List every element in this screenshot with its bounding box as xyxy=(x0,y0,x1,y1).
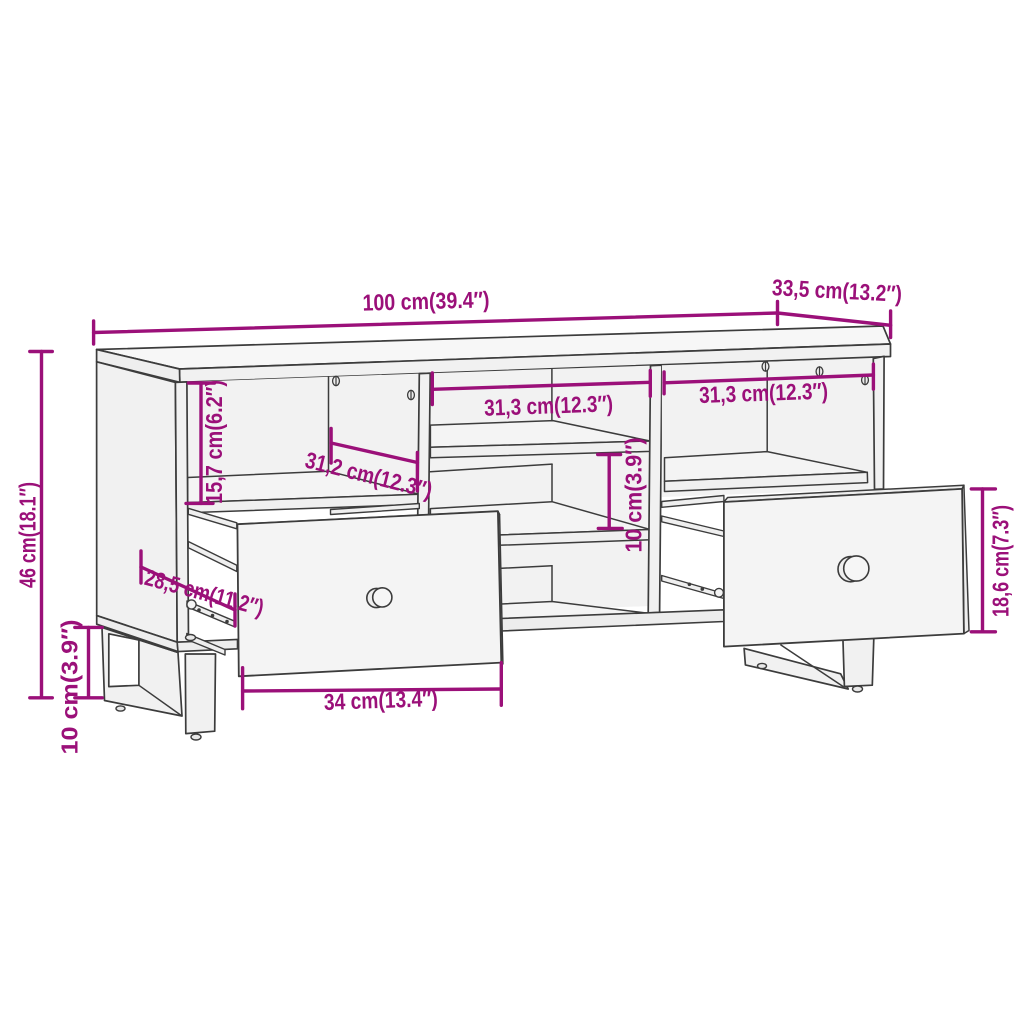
svg-text:10 cm(3.9″): 10 cm(3.9″) xyxy=(57,620,83,755)
svg-text:15,7 cm(6.2″): 15,7 cm(6.2″) xyxy=(201,380,227,504)
svg-text:10 cm(3.9″): 10 cm(3.9″) xyxy=(621,438,647,553)
svg-text:33,5 cm(13.2″): 33,5 cm(13.2″) xyxy=(771,274,902,307)
svg-text:34 cm(13.4″): 34 cm(13.4″) xyxy=(323,685,438,715)
svg-text:31,3 cm(12.3″): 31,3 cm(12.3″) xyxy=(484,390,614,420)
svg-text:18,6 cm(7.3″): 18,6 cm(7.3″) xyxy=(988,505,1014,617)
svg-text:100 cm(39.4″): 100 cm(39.4″) xyxy=(362,286,490,315)
svg-text:46 cm(18.1″): 46 cm(18.1″) xyxy=(15,482,41,588)
svg-text:31,3 cm(12.3″): 31,3 cm(12.3″) xyxy=(699,378,829,408)
